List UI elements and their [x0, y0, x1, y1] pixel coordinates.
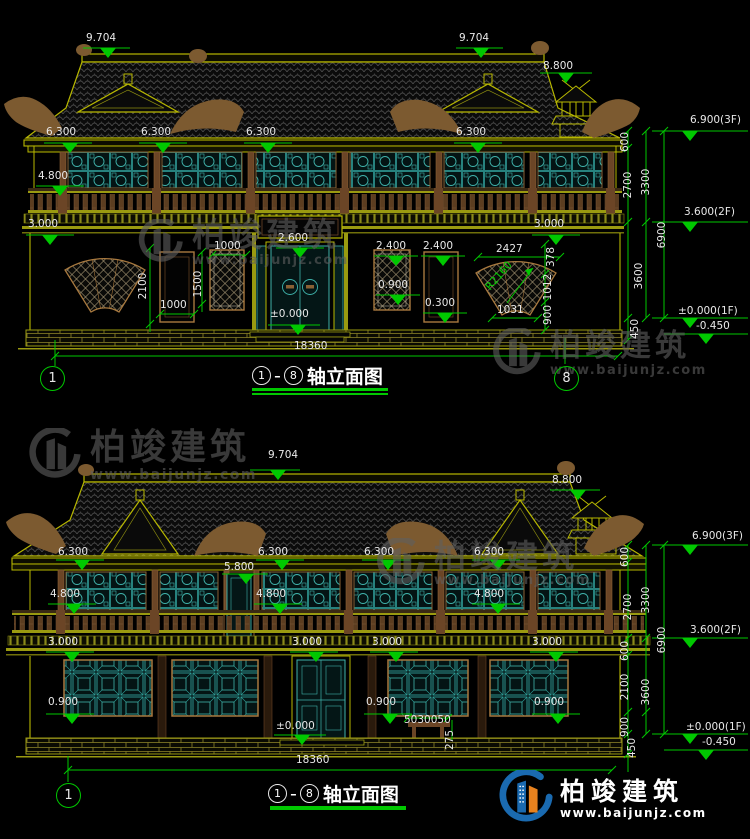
level-6300-g: 6.300	[364, 546, 394, 558]
level-0000-1f-bottom: ±0.000(1F)	[686, 721, 746, 733]
bottom-drawing-title: 1 - 8 轴立面图	[268, 780, 399, 807]
brand-logo: 柏竣建筑 www.baijunjz.com	[496, 770, 707, 828]
title-underline-2	[252, 393, 388, 395]
title-axis-start: 1	[268, 784, 287, 803]
brand-logo-text: 柏竣建筑	[560, 778, 707, 806]
level-0000-door: ±0.000	[270, 308, 309, 320]
brand-logo-url: www.baijunjz.com	[560, 806, 707, 820]
level-0900-top: 0.900	[378, 279, 408, 291]
level-3000-c: 3.000	[372, 636, 402, 648]
cad-drawing-canvas: 柏竣建筑 www.baijunjz.com 柏竣建筑 www.baijunjz.…	[0, 0, 750, 839]
level-m0450-bottom: -0.450	[702, 736, 736, 748]
level-9704-right: 9.704	[459, 32, 489, 44]
level-3000-right: 3.000	[534, 218, 564, 230]
level-9704-bottom: 9.704	[268, 449, 298, 461]
level-6300-f: 6.300	[258, 546, 288, 558]
dim-3300-bottom: 3300	[640, 583, 652, 617]
level-2600-door: 2.600	[278, 232, 308, 244]
dim-600-bottom-b: 600	[619, 634, 631, 668]
dim-600-top: 600	[619, 125, 631, 159]
watermark-logo-icon	[490, 328, 542, 380]
dim-2100-bottom: 2100	[619, 670, 631, 704]
dim-3600-top: 3600	[633, 259, 645, 293]
watermark-top-right: 柏竣建筑 www.baijunjz.com	[490, 328, 707, 380]
dim-275-bench: 275	[444, 723, 456, 757]
top-drawing-title: 1 - 8 轴立面图	[252, 362, 383, 389]
top-balcony-railing	[28, 188, 622, 214]
title-axis-end: 8	[300, 784, 319, 803]
level-6300-e: 6.300	[58, 546, 88, 558]
top-roof	[4, 41, 640, 146]
dim-18360-bottom: 18360	[296, 754, 329, 766]
dim-3300-top: 3300	[640, 165, 652, 199]
bottom-title-underline	[270, 806, 406, 810]
dim-6900-top: 6900	[656, 218, 668, 252]
dim-450-top: 450	[629, 312, 641, 346]
dim-1500-vertical: 1500	[192, 267, 204, 301]
dim-1000-window-top: 1000	[214, 240, 241, 252]
level-4800-top: 4.800	[38, 170, 68, 182]
dim-3600-bottom: 3600	[640, 675, 652, 709]
title-dash: -	[290, 783, 297, 805]
title-underline	[252, 388, 388, 391]
title-text: 轴立面图	[307, 362, 383, 389]
axis-circle-1-top: 1	[40, 366, 65, 391]
level-8800-bottom: 8.800	[552, 474, 582, 486]
level-3000-d: 3.000	[532, 636, 562, 648]
level-2400-b: 2.400	[423, 240, 453, 252]
level-m0450-top: -0.450	[696, 320, 730, 332]
level-6900-3f-top: 6.900(3F)	[690, 114, 741, 126]
dim-1000-window: 1000	[160, 299, 187, 311]
level-3000-left: 3.000	[28, 218, 58, 230]
watermark-top-center: 柏竣建筑 www.baijunjz.com	[136, 218, 349, 268]
level-2400-a: 2.400	[376, 240, 406, 252]
watermark-url: www.baijunjz.com	[192, 253, 349, 268]
watermark-bottom-left: 柏竣建筑 www.baijunjz.com	[26, 428, 257, 484]
level-3600-2f-bottom: 3.600(2F)	[690, 624, 741, 636]
watermark-brand: 柏竣建筑	[90, 429, 257, 467]
level-6900-3f-bottom: 6.900(3F)	[692, 530, 743, 542]
level-6300-c: 6.300	[246, 126, 276, 138]
dim-2100-vertical: 2100	[137, 269, 149, 303]
title-text: 轴立面图	[323, 780, 399, 807]
level-3000-a: 3.000	[48, 636, 78, 648]
level-3000-b: 3.000	[292, 636, 322, 648]
level-8800-top: 8.800	[543, 60, 573, 72]
level-0900-c: 0.900	[534, 696, 564, 708]
level-0000-1f-top: ±0.000(1F)	[678, 305, 738, 317]
title-axis-start: 1	[252, 366, 271, 385]
dim-18360-top: 18360	[294, 340, 327, 352]
watermark-url: www.baijunjz.com	[434, 573, 591, 588]
watermark-brand: 柏竣建筑	[434, 540, 591, 574]
watermark-logo-icon	[26, 428, 82, 484]
level-3600-2f-top: 3.600(2F)	[684, 206, 735, 218]
axis-circle-1-bottom: 1	[56, 783, 81, 808]
level-0300-top: 0.300	[425, 297, 455, 309]
level-4800-c: 4.800	[474, 588, 504, 600]
level-0000-bottom: ±0.000	[276, 720, 315, 732]
level-5800-door: 5.800	[224, 561, 254, 573]
level-6300-b: 6.300	[141, 126, 171, 138]
watermark-logo-icon	[136, 219, 184, 267]
dim-600-bottom-a: 600	[619, 540, 631, 574]
level-9704-left: 9.704	[86, 32, 116, 44]
level-6300-d: 6.300	[456, 126, 486, 138]
level-6300-a: 6.300	[46, 126, 76, 138]
brand-logo-icon	[496, 770, 554, 828]
dim-378-fan: 378	[545, 240, 557, 274]
dim-2700-top: 2700	[622, 168, 634, 202]
bottom-balcony-railing	[12, 610, 646, 634]
dim-900-fan: 900	[542, 298, 554, 332]
dim-2700-bottom: 2700	[622, 590, 634, 624]
title-axis-end: 8	[284, 366, 303, 385]
elevation-drawings-geometry	[0, 0, 750, 839]
dim-1031-fan: 1031	[497, 304, 524, 316]
dim-6900-bottom: 6900	[656, 623, 668, 657]
level-0900-a: 0.900	[48, 696, 78, 708]
top-fan-window-left	[65, 259, 145, 312]
level-4800-b: 4.800	[256, 588, 286, 600]
axis-circle-8-top: 8	[554, 366, 579, 391]
title-dash: -	[274, 365, 281, 387]
level-6300-h: 6.300	[474, 546, 504, 558]
watermark-url: www.baijunjz.com	[90, 467, 257, 483]
dim-450-bottom: 450	[626, 731, 638, 765]
level-0900-b: 0.900	[366, 696, 396, 708]
top-2f-lattice-windows	[68, 152, 602, 188]
level-4800-a: 4.800	[50, 588, 80, 600]
